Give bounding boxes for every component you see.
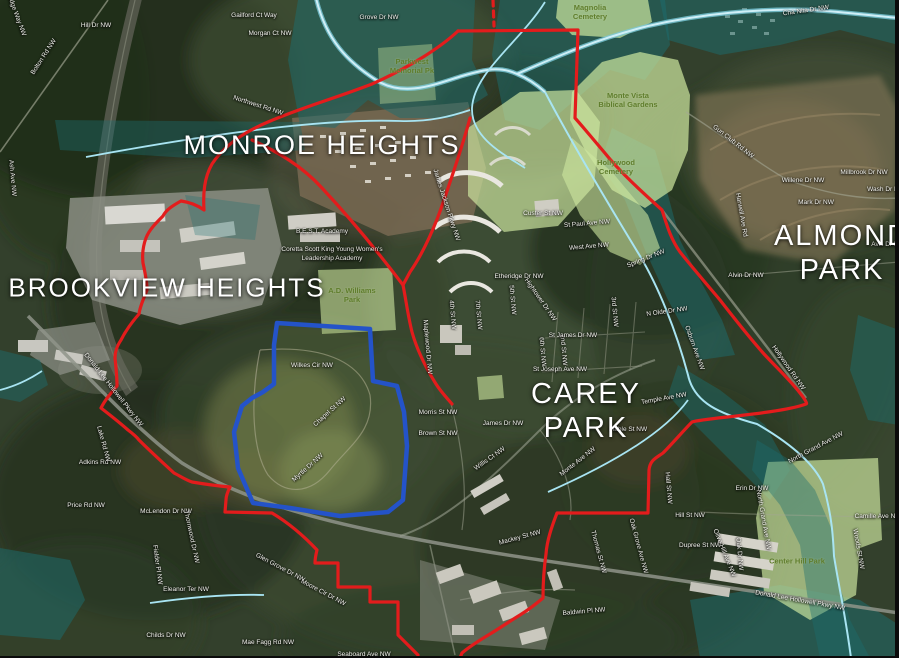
map-canvas <box>0 0 899 658</box>
right-edge-border <box>895 0 899 658</box>
aerial-neighborhood-map[interactable]: Bolton Rd NWHill Dr NWGailford Ct WayMor… <box>0 0 899 658</box>
